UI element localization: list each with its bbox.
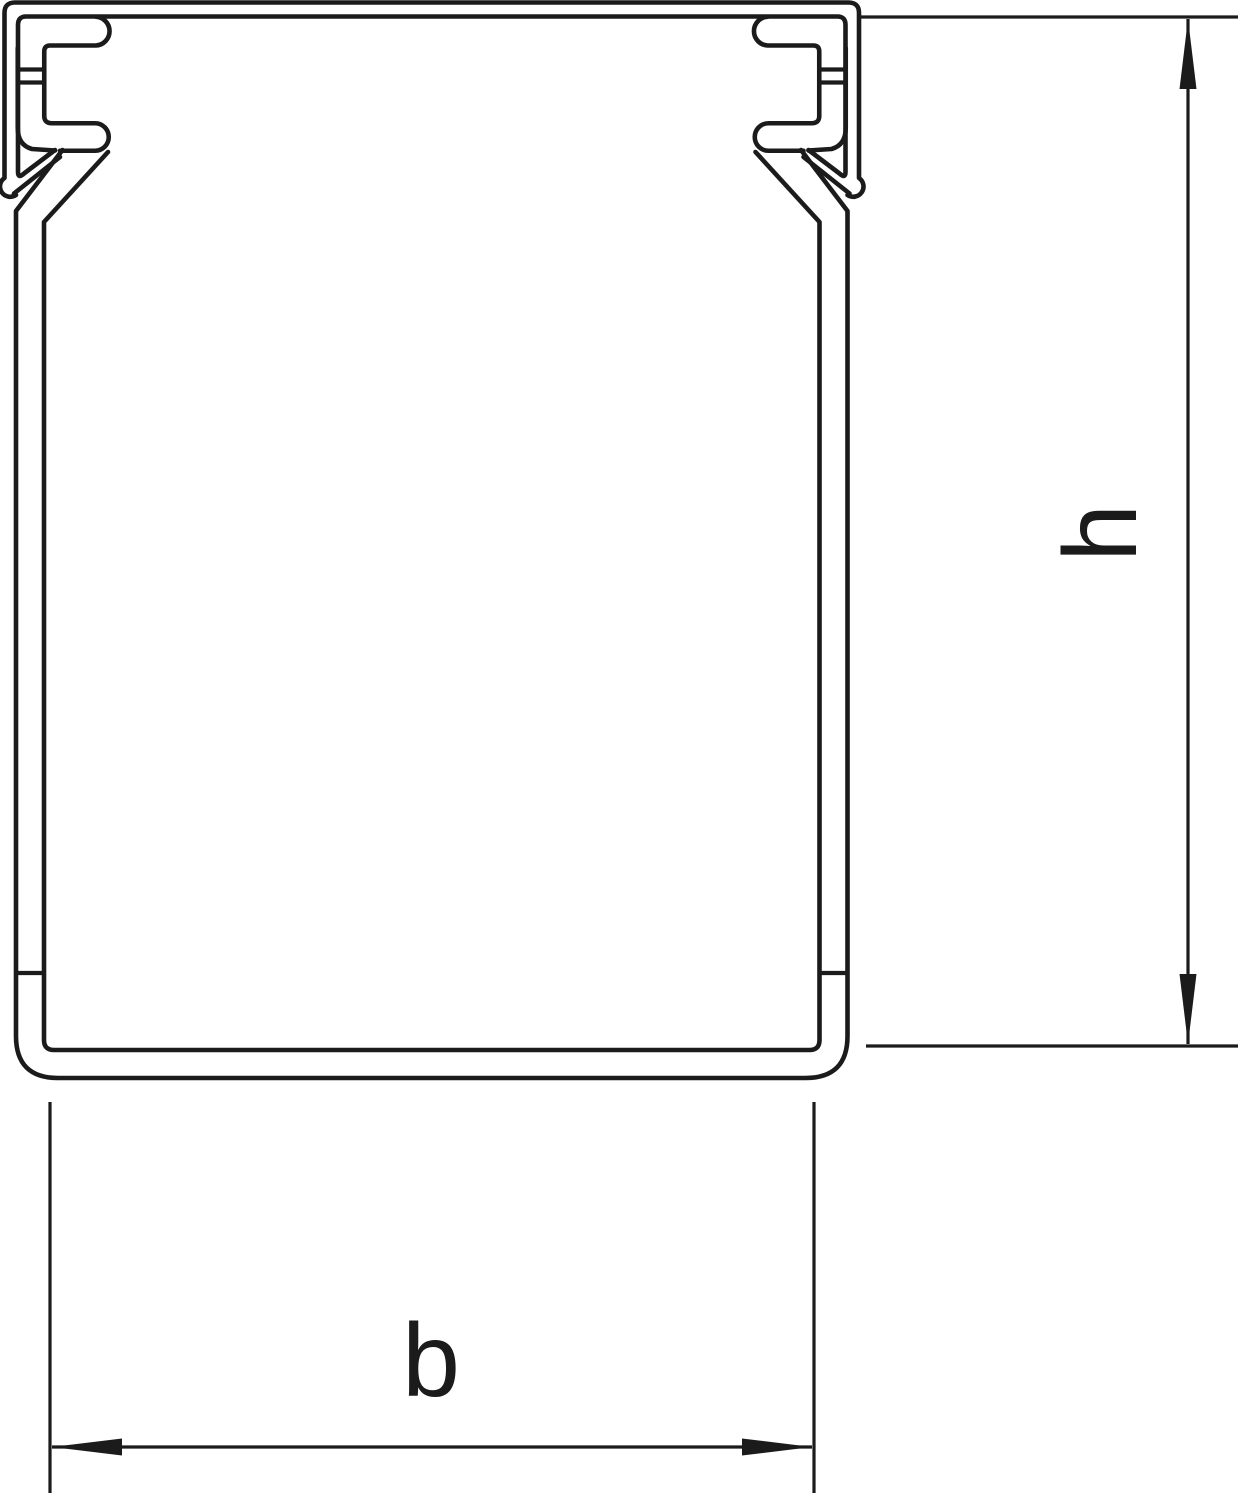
top-edge-outer-line-and-clip-legs xyxy=(0,3,863,197)
duct-outer-wall-and-base-line xyxy=(16,150,848,1078)
height-dimension: h xyxy=(861,17,1238,1046)
duct-inner-wall-and-base-line xyxy=(44,152,820,1050)
right-clip-inner-leg-line xyxy=(809,48,846,151)
height-dimension-label: h xyxy=(1043,504,1159,562)
technical-drawing-canvas: h b xyxy=(0,0,1241,1500)
left-clip-finger-and-spring xyxy=(44,17,109,151)
width-dimension: b xyxy=(50,1102,814,1493)
top-edge-inner-line-and-clip-inner-legs xyxy=(18,17,846,176)
right-clip-finger-and-spring xyxy=(754,17,819,151)
duct-cross-section-drawing: h b xyxy=(0,0,1241,1500)
duct-profile xyxy=(0,3,863,1079)
left-clip-inner-leg-line xyxy=(18,48,55,151)
arrow-down-icon xyxy=(1180,974,1197,1044)
arrow-left-icon xyxy=(52,1439,122,1456)
width-dimension-label: b xyxy=(402,1303,460,1419)
arrow-right-icon xyxy=(742,1439,812,1456)
arrow-up-icon xyxy=(1180,19,1197,89)
